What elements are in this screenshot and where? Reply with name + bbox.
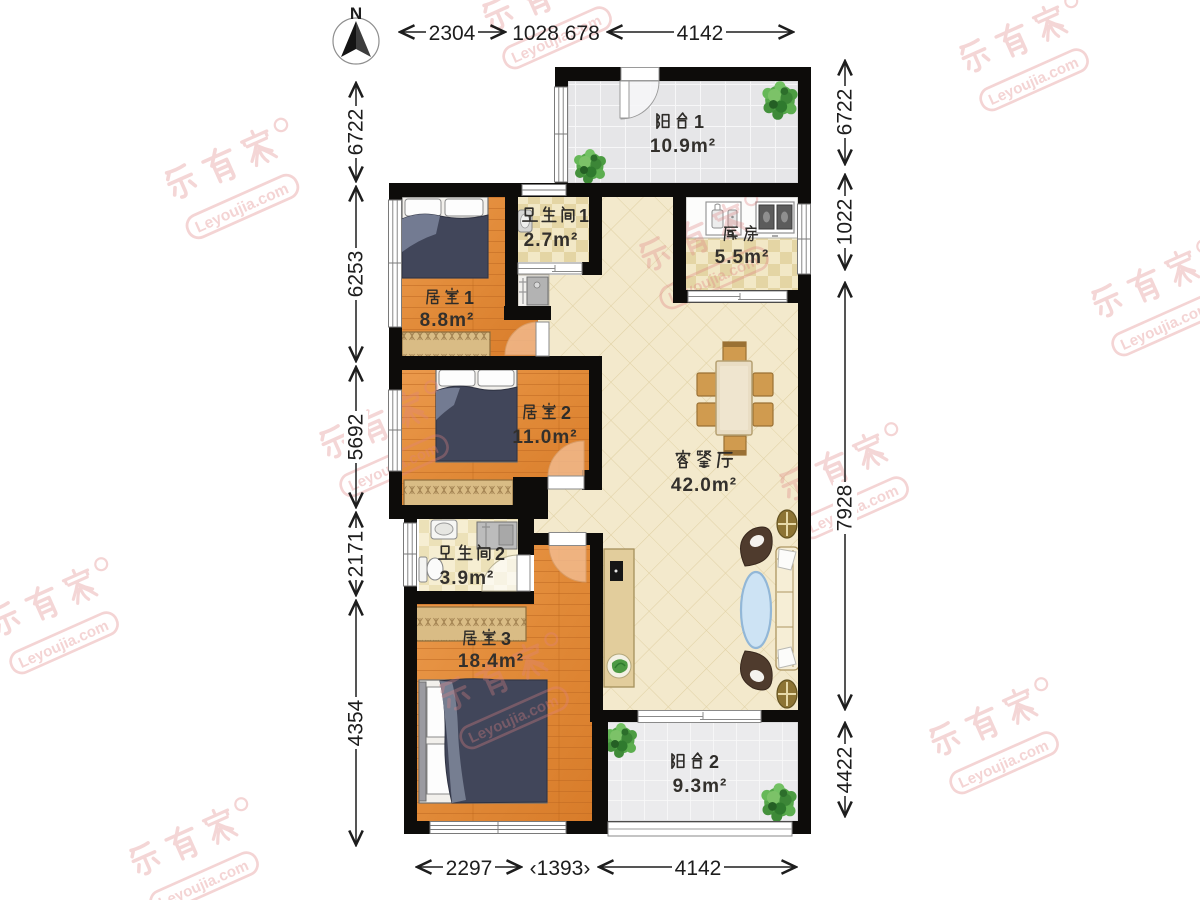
svg-text:2: 2 xyxy=(709,752,719,772)
svg-text:1: 1 xyxy=(579,206,589,226)
svg-text:N: N xyxy=(350,4,362,23)
svg-text:42.0m²: 42.0m² xyxy=(671,475,737,496)
svg-text:4354: 4354 xyxy=(345,699,368,746)
svg-text:2: 2 xyxy=(561,403,571,423)
svg-text:9.3m²: 9.3m² xyxy=(673,776,728,797)
svg-text:2171: 2171 xyxy=(345,531,368,578)
svg-text:6722: 6722 xyxy=(345,109,368,156)
svg-text:1: 1 xyxy=(464,288,474,308)
svg-text:2: 2 xyxy=(495,544,505,564)
svg-text:6253: 6253 xyxy=(345,251,368,298)
svg-text:2297: 2297 xyxy=(446,857,493,880)
svg-text:10.9m²: 10.9m² xyxy=(650,136,716,157)
svg-text:11.0m²: 11.0m² xyxy=(512,427,577,448)
svg-text:‹1393›: ‹1393› xyxy=(530,857,591,880)
svg-text:18.4m²: 18.4m² xyxy=(458,651,524,672)
svg-text:3.9m²: 3.9m² xyxy=(440,568,495,589)
svg-text:5.5m²: 5.5m² xyxy=(715,247,770,268)
svg-text:4422: 4422 xyxy=(834,747,857,794)
svg-text:5692: 5692 xyxy=(345,414,368,461)
svg-text:1028 678: 1028 678 xyxy=(512,22,600,45)
svg-text:2304: 2304 xyxy=(429,22,476,45)
svg-text:1022: 1022 xyxy=(834,199,857,246)
svg-text:8.8m²: 8.8m² xyxy=(420,310,475,331)
svg-text:7928: 7928 xyxy=(834,485,857,532)
svg-text:4142: 4142 xyxy=(677,22,724,45)
svg-text:3: 3 xyxy=(501,629,511,649)
svg-text:6722: 6722 xyxy=(834,89,857,136)
svg-text:2.7m²: 2.7m² xyxy=(524,230,579,251)
svg-text:1: 1 xyxy=(694,112,704,132)
svg-text:4142: 4142 xyxy=(675,857,722,880)
